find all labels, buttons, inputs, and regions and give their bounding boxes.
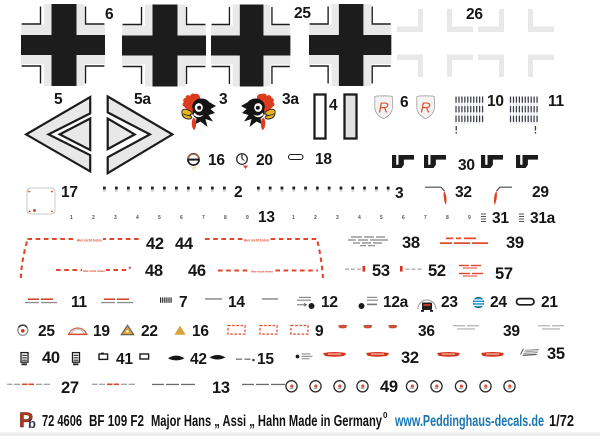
svg-text:48: 48 [145, 262, 163, 280]
svg-text:4: 4 [358, 215, 361, 221]
svg-text:10: 10 [487, 93, 504, 110]
svg-text:6: 6 [180, 215, 183, 221]
svg-text:9: 9 [246, 215, 249, 221]
svg-text:8: 8 [446, 215, 449, 221]
svg-text:12a: 12a [383, 294, 409, 311]
svg-text:72 4606: 72 4606 [42, 413, 82, 430]
svg-text:39: 39 [503, 323, 520, 340]
svg-text:3: 3 [219, 91, 228, 108]
svg-text:6: 6 [400, 94, 409, 111]
svg-text:7: 7 [202, 215, 205, 221]
svg-text:22: 22 [141, 323, 158, 340]
svg-text:1/72: 1/72 [549, 413, 574, 430]
svg-text:24: 24 [490, 294, 507, 311]
svg-text:25: 25 [294, 5, 311, 22]
svg-text:11: 11 [71, 294, 87, 311]
svg-text:3: 3 [336, 215, 339, 221]
svg-text:42: 42 [146, 235, 164, 253]
svg-text:Hier nicht treten: Hier nicht treten [251, 270, 273, 274]
svg-text:7: 7 [179, 294, 187, 311]
svg-text:6: 6 [402, 215, 405, 221]
svg-text:2: 2 [92, 215, 95, 221]
svg-text:57: 57 [495, 265, 513, 283]
svg-text:www.Peddinghaus-decals.de: www.Peddinghaus-decals.de [394, 413, 544, 430]
svg-text:12: 12 [321, 294, 338, 311]
svg-text:2: 2 [234, 184, 242, 201]
svg-text:13: 13 [212, 379, 230, 397]
svg-text:21: 21 [541, 294, 558, 311]
svg-text:16: 16 [208, 152, 225, 169]
svg-text:36: 36 [418, 323, 435, 340]
svg-text:Hier nicht treten: Hier nicht treten [83, 269, 105, 273]
svg-text:18: 18 [315, 151, 332, 168]
svg-text:41: 41 [116, 351, 133, 368]
svg-text:20: 20 [256, 152, 273, 169]
svg-text:8: 8 [224, 215, 227, 221]
svg-text:5a: 5a [134, 91, 151, 108]
svg-text:35: 35 [547, 345, 565, 363]
svg-text:Major Hans „ Assi „ Hahn Made: Major Hans „ Assi „ Hahn Made in Germany [151, 413, 382, 430]
svg-text:53: 53 [372, 262, 390, 280]
svg-text:31: 31 [492, 210, 509, 227]
svg-text:5: 5 [380, 215, 383, 221]
svg-text:13: 13 [258, 209, 275, 226]
svg-text:46: 46 [188, 262, 206, 280]
svg-text:15: 15 [257, 351, 274, 368]
svg-text:49: 49 [380, 378, 398, 396]
svg-text:9: 9 [468, 215, 471, 221]
svg-text:7: 7 [424, 215, 427, 221]
svg-text:14: 14 [228, 294, 245, 311]
svg-text:3: 3 [114, 215, 117, 221]
svg-text:52: 52 [428, 262, 446, 280]
svg-text:32: 32 [401, 349, 419, 367]
svg-text:4: 4 [329, 97, 338, 114]
svg-text:42: 42 [190, 351, 207, 368]
svg-text:38: 38 [402, 234, 420, 252]
svg-text:40: 40 [42, 349, 60, 367]
svg-text:25: 25 [38, 323, 55, 340]
svg-text:b: b [28, 416, 36, 431]
svg-text:17: 17 [61, 184, 78, 201]
svg-text:5: 5 [54, 91, 63, 108]
svg-text:1: 1 [70, 215, 73, 221]
svg-text:9: 9 [315, 323, 324, 340]
svg-text:3: 3 [395, 185, 404, 202]
svg-text:30: 30 [458, 157, 475, 174]
svg-text:3a: 3a [282, 91, 299, 108]
svg-text:Hier nicht treten: Hier nicht treten [77, 238, 102, 242]
svg-text:39: 39 [506, 234, 524, 252]
svg-text:0: 0 [383, 411, 388, 420]
svg-text:5: 5 [158, 215, 161, 221]
svg-text:31a: 31a [530, 210, 556, 227]
svg-text:Hier nicht treten: Hier nicht treten [244, 238, 269, 242]
svg-text:27: 27 [61, 379, 79, 397]
svg-text:6: 6 [105, 6, 114, 23]
svg-text:2: 2 [314, 215, 317, 221]
svg-text:44: 44 [175, 235, 194, 253]
svg-text:16: 16 [192, 323, 209, 340]
svg-text:23: 23 [441, 294, 458, 311]
svg-text:4: 4 [136, 215, 139, 221]
svg-text:29: 29 [532, 184, 549, 201]
svg-text:BF 109 F2: BF 109 F2 [89, 413, 144, 430]
svg-text:11: 11 [548, 93, 564, 110]
svg-text:32: 32 [455, 184, 472, 201]
svg-text:1: 1 [292, 215, 295, 221]
svg-text:26: 26 [466, 6, 483, 23]
svg-text:19: 19 [93, 323, 110, 340]
